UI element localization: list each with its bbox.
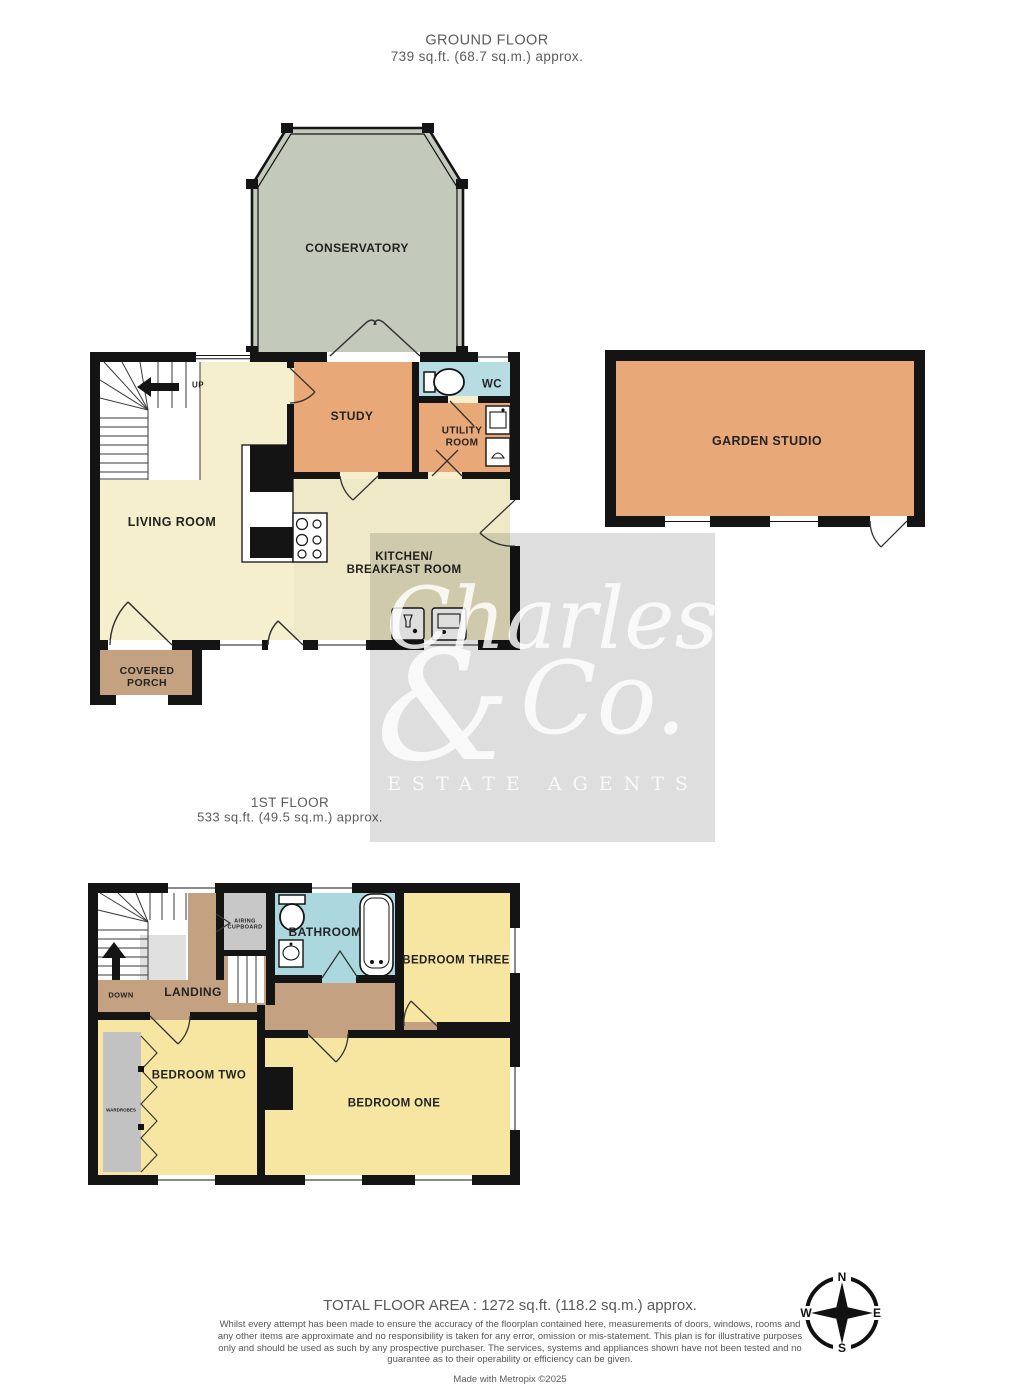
window [220,640,262,650]
label-up: UP [192,380,204,389]
floorplan-page: GROUND FLOOR 739 sq.ft. (68.7 sq.m.) app… [0,0,1020,1389]
label-wardrobes: WARDROBES [106,1107,136,1112]
window [196,352,250,362]
compass-north: N [838,1270,847,1284]
wardrobes-area [103,1032,141,1172]
label-bedroom-one: BEDROOM ONE [348,1097,441,1110]
total-floor-area: TOTAL FLOOR AREA : 1272 sq.ft. (118.2 sq… [323,1297,697,1314]
label-airing-cupboard: AIRING CUPBOARD [228,919,263,932]
label-bedroom-three: BEDROOM THREE [402,954,509,967]
window [510,928,520,973]
first-floor-title: 1ST FLOOR [251,795,329,811]
ground-floor-subtitle: 739 sq.ft. (68.7 sq.m.) approx. [391,49,584,65]
label-bedroom-two: BEDROOM TWO [152,1069,246,1082]
back-door-gap [268,640,303,650]
credit-text: Made with Metropix ©2025 [453,1374,566,1385]
label-bathroom: BATHROOM [289,926,362,940]
sink-icon [279,940,303,967]
label-living-room: LIVING ROOM [128,515,216,529]
front-door-gap [108,640,172,650]
label-conservatory: CONSERVATORY [305,242,408,256]
utility-sink-icon [486,406,510,434]
label-down: DOWN [108,992,133,1001]
window [478,352,508,362]
window [665,516,710,527]
watermark-word2: Co. [520,649,687,749]
hob-icon [293,513,327,562]
compass-west: W [800,1306,811,1320]
window [312,883,352,893]
studio-door-gap [870,516,907,527]
window [415,1175,472,1185]
toilet-icon [424,369,464,395]
fireplace-chimney [242,445,293,562]
label-wc: WC [482,378,502,391]
label-utility-room: UTILITY ROOM [442,426,483,449]
window [305,1175,362,1185]
watermark-tagline: ESTATE AGENTS [378,775,708,794]
label-study: STUDY [331,410,374,424]
window [168,883,215,893]
disclaimer-text: Whilst every attempt has been made to en… [215,1319,805,1366]
bathtub-icon [360,894,393,976]
label-covered-porch: COVERED PORCH [120,665,175,689]
agency-watermark: Charles & Co. ESTATE AGENTS [370,533,715,842]
compass-south: S [838,1341,846,1355]
window [770,516,818,527]
ground-floor-title: GROUND FLOOR [425,33,548,50]
first-floor-subtitle: 533 sq.ft. (49.5 sq.m.) approx. [197,811,383,826]
washing-machine-icon [486,438,510,466]
label-landing: LANDING [164,986,221,1000]
window [318,640,366,650]
window [510,1067,520,1130]
label-garden-studio: GARDEN STUDIO [712,434,822,448]
conservatory-doorway [327,352,420,362]
compass-east: E [873,1306,881,1320]
watermark-ampersand: & [376,631,511,783]
window [158,1175,215,1185]
room-garden-studio [605,350,925,547]
